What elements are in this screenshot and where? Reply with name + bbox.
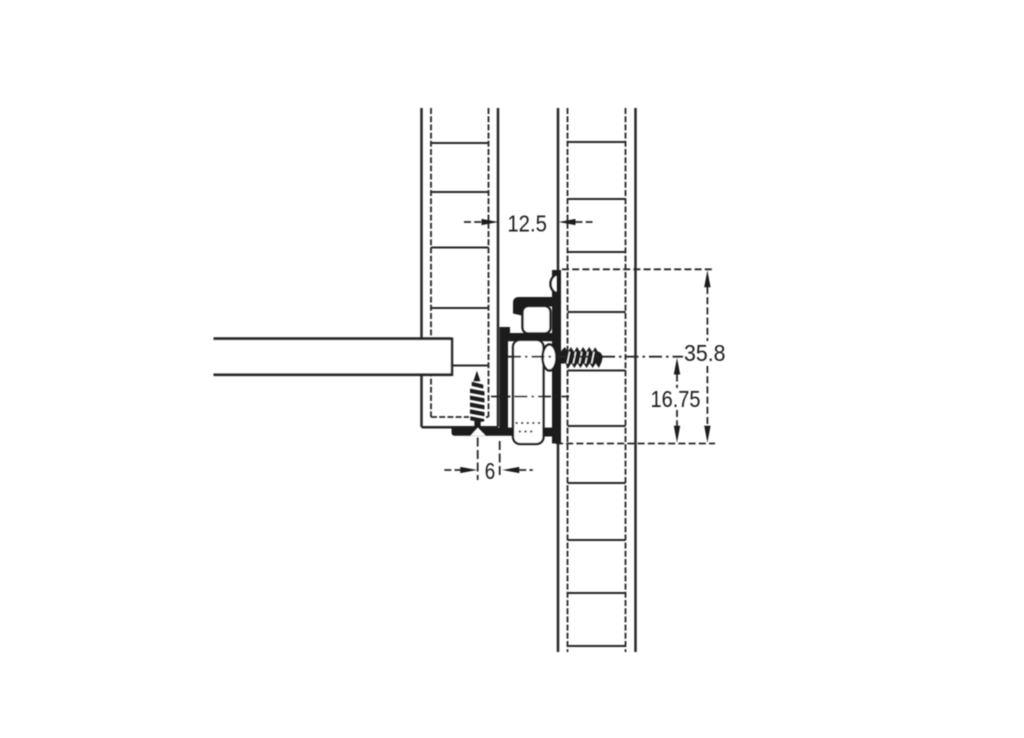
svg-text:12.5: 12.5 — [507, 211, 547, 237]
svg-text:35.8: 35.8 — [684, 340, 726, 366]
svg-text:16.75: 16.75 — [651, 386, 701, 412]
svg-text:6: 6 — [485, 458, 496, 484]
